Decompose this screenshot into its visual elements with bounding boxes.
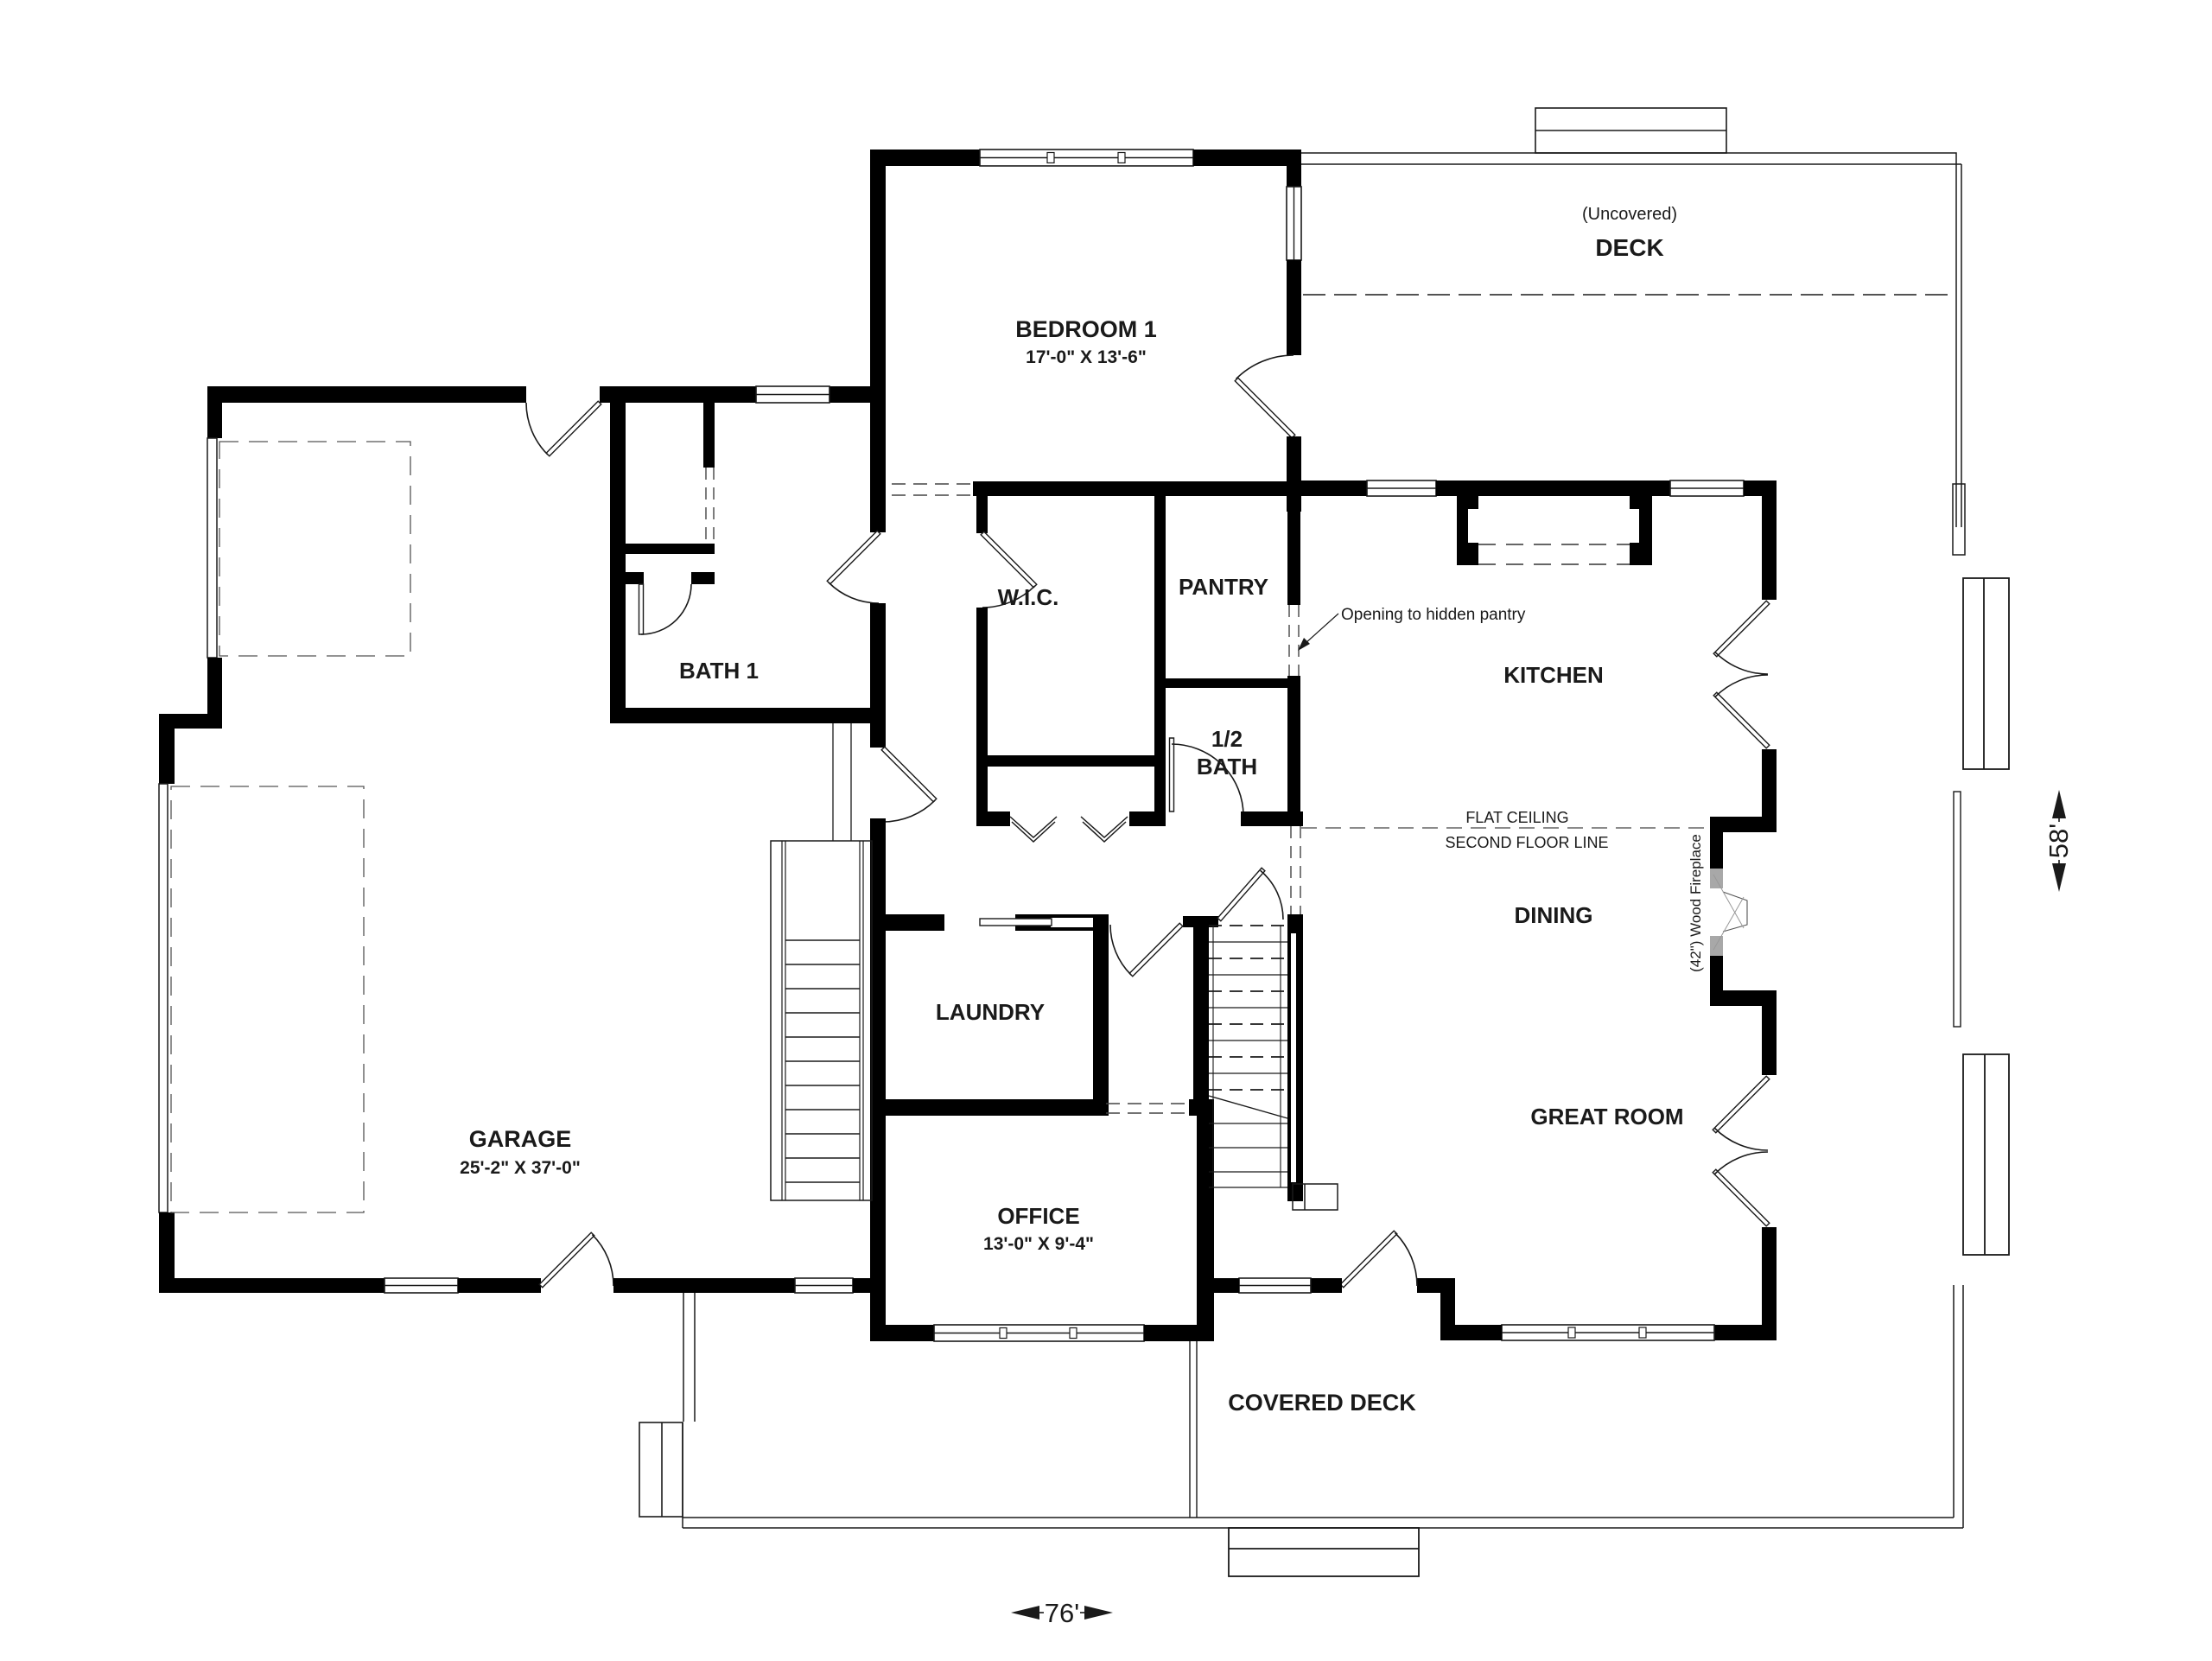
svg-text:LAUNDRY: LAUNDRY — [936, 999, 1045, 1025]
svg-text:W.I.C.: W.I.C. — [998, 584, 1059, 610]
svg-text:FLAT CEILING: FLAT CEILING — [1465, 809, 1568, 826]
svg-text:1/2: 1/2 — [1211, 726, 1243, 752]
svg-text:COVERED DECK: COVERED DECK — [1228, 1390, 1416, 1416]
svg-text:(Uncovered): (Uncovered) — [1582, 205, 1677, 224]
svg-text:KITCHEN: KITCHEN — [1503, 662, 1604, 688]
svg-text:BATH: BATH — [1197, 754, 1257, 780]
svg-text:(42") Wood Fireplace: (42") Wood Fireplace — [1688, 834, 1704, 972]
svg-text:GREAT ROOM: GREAT ROOM — [1530, 1104, 1683, 1130]
svg-text:17'-0" X 13'-6": 17'-0" X 13'-6" — [1026, 347, 1147, 367]
svg-text:76': 76' — [1045, 1598, 1079, 1628]
svg-text:DECK: DECK — [1595, 234, 1663, 261]
svg-text:58': 58' — [2044, 824, 2074, 858]
svg-text:OFFICE: OFFICE — [997, 1203, 1079, 1229]
svg-text:13'-0" X 9'-4": 13'-0" X 9'-4" — [983, 1234, 1094, 1254]
svg-text:25'-2" X 37'-0": 25'-2" X 37'-0" — [460, 1158, 581, 1178]
svg-text:Opening to hidden pantry: Opening to hidden pantry — [1341, 606, 1526, 624]
svg-text:BATH 1: BATH 1 — [679, 658, 759, 684]
svg-text:DINING: DINING — [1515, 902, 1593, 928]
svg-text:PANTRY: PANTRY — [1179, 574, 1268, 600]
svg-text:GARAGE: GARAGE — [469, 1126, 572, 1152]
svg-text:SECOND FLOOR LINE: SECOND FLOOR LINE — [1445, 834, 1608, 851]
svg-text:BEDROOM 1: BEDROOM 1 — [1015, 316, 1157, 342]
